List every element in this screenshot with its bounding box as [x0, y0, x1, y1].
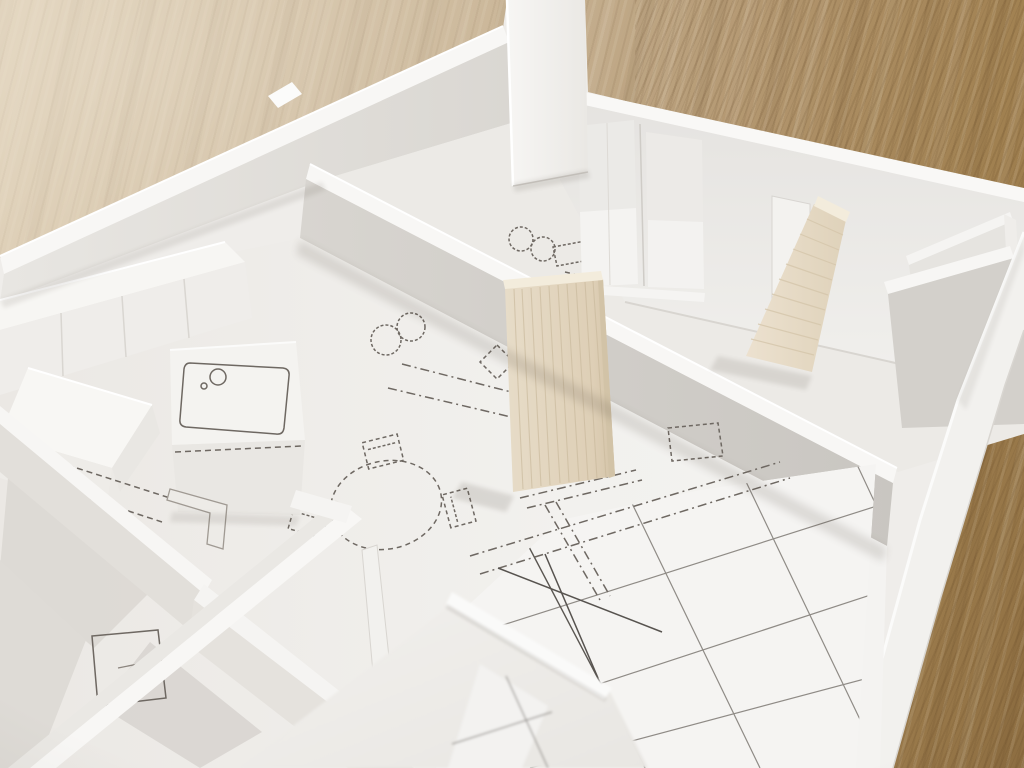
door-glass-reflection: [648, 220, 704, 289]
photo-stage: [0, 0, 1024, 768]
tall-corner-wall: [507, 0, 588, 186]
wall-junction-piece: [268, 82, 302, 108]
kitchen-island-sink: [170, 342, 305, 515]
architectural-model: [0, 0, 1024, 768]
counter-top-face: [170, 342, 305, 445]
